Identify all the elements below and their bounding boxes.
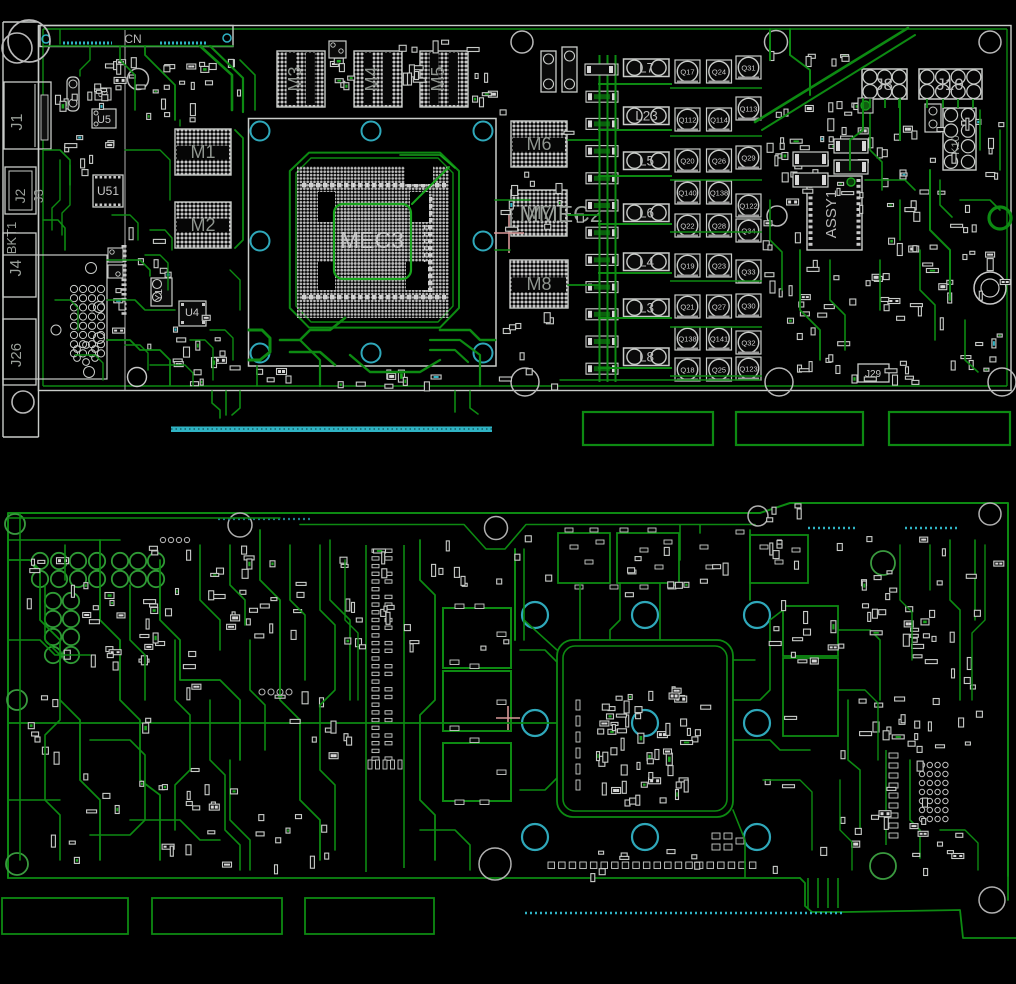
svg-text:Q29: Q29 <box>741 154 755 163</box>
svg-text:Q27: Q27 <box>712 303 726 312</box>
svg-text:Q122: Q122 <box>739 202 757 211</box>
svg-text:Q28: Q28 <box>712 222 726 231</box>
svg-text:MEC3: MEC3 <box>340 227 404 253</box>
svg-text:U4: U4 <box>185 307 199 319</box>
svg-text:L5: L5 <box>639 154 654 169</box>
svg-text:Q112: Q112 <box>679 116 697 125</box>
svg-text:Q31: Q31 <box>741 64 755 73</box>
svg-text:Q34: Q34 <box>741 227 755 236</box>
svg-text:Q25: Q25 <box>712 366 726 375</box>
svg-text:J4: J4 <box>8 259 25 276</box>
svg-text:Q20: Q20 <box>680 157 694 166</box>
svg-text:L4: L4 <box>639 255 655 270</box>
svg-text:Q32: Q32 <box>741 339 755 348</box>
svg-text:L8: L8 <box>639 350 654 365</box>
svg-text:J2: J2 <box>12 188 28 203</box>
svg-text:L6: L6 <box>639 206 654 221</box>
svg-text:Q26: Q26 <box>712 157 726 166</box>
svg-text:Q113: Q113 <box>740 105 758 114</box>
svg-text:Q24: Q24 <box>712 68 726 77</box>
svg-text:M8: M8 <box>526 274 551 294</box>
svg-text:J1: J1 <box>9 113 26 130</box>
svg-text:Q19: Q19 <box>680 262 694 271</box>
svg-text:Q21: Q21 <box>680 303 694 312</box>
svg-text:J3: J3 <box>31 189 46 203</box>
svg-text:M2: M2 <box>190 215 215 235</box>
svg-text:Q138: Q138 <box>678 335 696 344</box>
svg-text:M3: M3 <box>285 66 305 91</box>
svg-text:Q114: Q114 <box>710 116 728 125</box>
svg-text:BKT1: BKT1 <box>4 222 19 255</box>
svg-text:M4: M4 <box>362 66 382 91</box>
svg-text:Q30: Q30 <box>741 302 755 311</box>
svg-text:Q23: Q23 <box>712 262 726 271</box>
svg-text:Y1: Y1 <box>154 288 165 301</box>
svg-text:Q141: Q141 <box>710 335 728 344</box>
svg-text:M1: M1 <box>190 142 215 162</box>
svg-text:J8: J8 <box>875 75 893 94</box>
svg-text:U5: U5 <box>97 114 111 126</box>
svg-text:L3: L3 <box>639 301 654 316</box>
svg-text:Q33: Q33 <box>741 268 755 277</box>
svg-text:Q138: Q138 <box>710 189 728 198</box>
svg-text:Q123: Q123 <box>739 365 757 374</box>
svg-text:L7: L7 <box>639 61 654 76</box>
svg-text:K10: K10 <box>950 135 962 155</box>
svg-text:J26: J26 <box>8 343 25 367</box>
svg-text:M6: M6 <box>526 134 551 154</box>
svg-text:ASSY1: ASSY1 <box>823 190 840 238</box>
svg-text:Q140: Q140 <box>678 189 696 198</box>
svg-text:Q17: Q17 <box>680 68 694 77</box>
svg-text:Q22: Q22 <box>680 222 694 231</box>
svg-text:CN: CN <box>124 32 141 46</box>
svg-text:Q18: Q18 <box>680 366 694 375</box>
svg-text:U51: U51 <box>97 184 119 198</box>
svg-text:J10: J10 <box>936 75 963 94</box>
svg-text:L23: L23 <box>635 109 658 124</box>
svg-text:M5: M5 <box>428 66 448 91</box>
